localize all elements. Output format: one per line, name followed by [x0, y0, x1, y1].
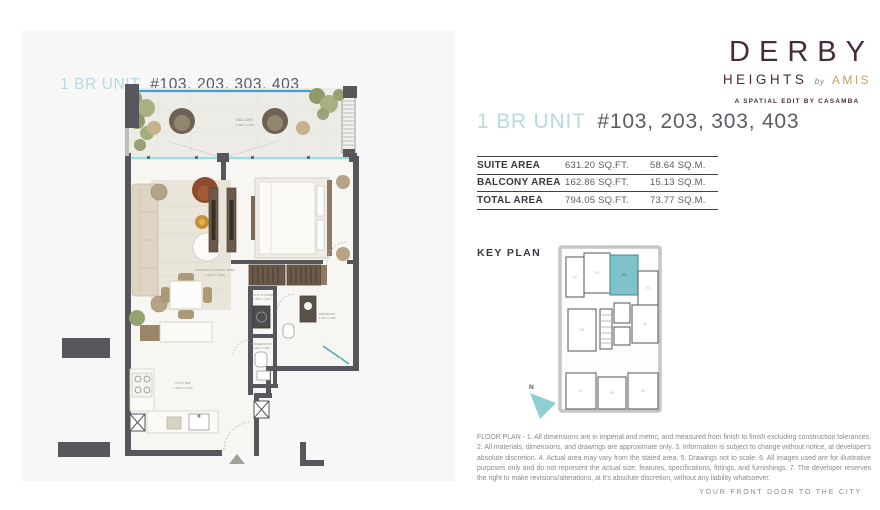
balcony-area: BALCONY 8.08M X 1.85M [125, 88, 356, 156]
sofa [132, 184, 158, 296]
area-label: TOTAL AREA [477, 195, 565, 206]
area-row-total: TOTAL AREA 794.05 SQ.FT. 73.77 SQ.M. [477, 192, 718, 210]
dining-table [170, 281, 202, 309]
details-title-units: #103, 203, 303, 403 [597, 110, 799, 133]
area-label: SUITE AREA [477, 160, 565, 171]
powder-toilet [255, 352, 267, 367]
powder-sink [257, 371, 270, 380]
kitchen-peninsula-wood [140, 325, 160, 341]
key-plan-unit-label: 02 [595, 271, 599, 275]
dining-chair [161, 287, 170, 303]
key-plan-unit-label: 04 [646, 286, 650, 290]
key-plan-unit-label: 06 [643, 322, 647, 326]
kitchen-dims: 3.28M X 2.31M [174, 386, 194, 390]
powder-dims: 1.28M X 1.45M [253, 347, 270, 350]
area-label: BALCONY AREA [477, 177, 565, 188]
dining-chair [203, 287, 212, 303]
utility-label: UTILITY & STORE [251, 293, 273, 297]
bathroom-dims: 1.75M X 2.45M [319, 317, 336, 320]
headboard [327, 180, 332, 256]
balcony-armchair [262, 108, 288, 134]
bench [251, 196, 255, 240]
area-table: SUITE AREA 631.20 SQ.FT. 58.64 SQ.M. BAL… [477, 156, 718, 210]
balcony-side-table [296, 121, 310, 135]
area-sqm: 58.64 SQ.M. [650, 160, 718, 171]
details-title: 1 BR UNIT #103, 203, 303, 403 [477, 110, 799, 134]
area-row-suite: SUITE AREA 631.20 SQ.FT. 58.64 SQ.M. [477, 157, 718, 175]
wardrobe [249, 265, 327, 285]
page: 1 BR UNIT #103, 203, 303, 403 [0, 0, 880, 510]
area-row-balcony: BALCONY AREA 162.86 SQ.FT. 15.13 SQ.M. [477, 175, 718, 193]
area-sqft: 794.05 SQ.FT. [565, 195, 650, 206]
stove [132, 373, 152, 397]
nightstand [336, 175, 350, 189]
balcony-dims: 8.08M X 1.85M [236, 123, 256, 127]
details-title-prefix: 1 BR UNIT [477, 110, 586, 133]
brand-name: DERBY [718, 36, 880, 69]
brand-amis: AMIS [832, 73, 871, 87]
key-plan-unit-label: 08 [610, 391, 614, 395]
nightstand [336, 247, 350, 261]
brand-logo: DERBY HEIGHTS by AMIS A SPATIAL EDIT BY … [718, 36, 876, 105]
key-plan-unit-label: 07 [579, 389, 583, 393]
key-plan-drawing: 01 02 03 04 05 06 07 08 09 [556, 243, 664, 415]
brand-tagline: A SPATIAL EDIT BY CASAMBA [718, 98, 876, 105]
disclaimer-text: FLOOR PLAN - 1. All dimensions are in im… [477, 433, 871, 485]
area-sqft: 162.86 SQ.FT. [565, 177, 650, 188]
powder-label: POWDER ROOM [251, 342, 271, 346]
balcony-side-table [147, 121, 161, 135]
plant [129, 310, 145, 326]
balcony-louver-screen [342, 97, 355, 153]
key-plan-unit-label: 09 [641, 389, 645, 393]
washer [253, 306, 270, 328]
area-sqft: 631.20 SQ.FT. [565, 160, 650, 171]
area-sqm: 73.77 SQ.M. [650, 195, 718, 206]
key-plan-unit-label: 01 [573, 275, 577, 279]
pouf [151, 184, 167, 200]
kitchen-label: KITCHEN [176, 381, 191, 385]
north-label: N [529, 384, 534, 391]
brand-by: by [815, 76, 825, 86]
area-sqm: 15.13 SQ.M. [650, 177, 718, 188]
footer-tagline: YOUR FRONT DOOR TO THE CITY [699, 489, 862, 496]
kitchen-appliance [167, 417, 181, 429]
dining-chair [178, 310, 194, 319]
brand-subname: HEIGHTS by AMIS [718, 72, 876, 87]
key-plan-core-shaft [614, 327, 630, 345]
kitchen-peninsula [160, 322, 212, 342]
toilet [283, 324, 294, 338]
key-plan-unit-label: 03 [622, 273, 626, 277]
key-plan-unit-label: 05 [580, 328, 584, 332]
north-arrow-icon: N [524, 379, 558, 423]
key-plan-core-elevator [614, 303, 630, 323]
balcony-label: BALCONY [236, 118, 254, 122]
lounge-label: LOUNGE & DINING AREA [195, 268, 237, 272]
lounge-dims: 5.48M X 3.55M [206, 273, 226, 277]
key-plan-heading: KEY PLAN [477, 247, 541, 259]
utility-dims: 1.48M X 1.31M [254, 298, 271, 301]
utility-room: UTILITY & STORE 1.48M X 1.31M [251, 293, 273, 328]
brand-heights: HEIGHTS [723, 72, 808, 87]
balcony-armchair [169, 108, 195, 134]
floor-plan-drawing: BALCONY 8.08M X 1.85M [55, 84, 370, 466]
bathroom-label: BATHROOM [319, 312, 336, 316]
